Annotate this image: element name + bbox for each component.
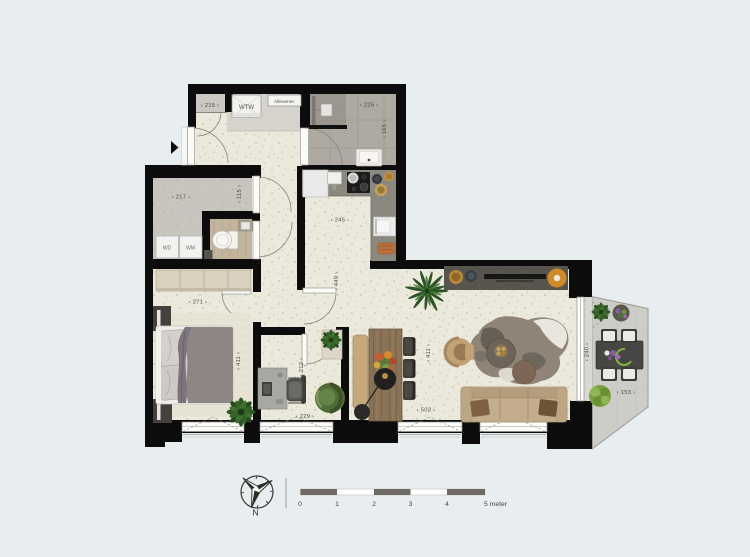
svg-text:WD: WD: [163, 246, 172, 252]
svg-text:‹ 217 ›: ‹ 217 ›: [172, 195, 190, 201]
svg-text:‹ 240 ›: ‹ 240 ›: [585, 343, 591, 361]
svg-text:‹ 411 ›: ‹ 411 ›: [426, 344, 432, 362]
svg-text:‹ 153 ›: ‹ 153 ›: [617, 390, 635, 396]
svg-text:4: 4: [445, 501, 449, 508]
svg-text:‹ 411 ›: ‹ 411 ›: [236, 352, 242, 370]
svg-text:N: N: [253, 508, 259, 518]
svg-text:WM: WM: [186, 246, 195, 252]
svg-text:‹ 502 ›: ‹ 502 ›: [417, 408, 435, 414]
svg-text:2: 2: [372, 501, 376, 508]
svg-text:‹ 245 ›: ‹ 245 ›: [331, 218, 349, 224]
svg-text:5 meter: 5 meter: [484, 501, 508, 508]
svg-text:‹ 215 ›: ‹ 215 ›: [201, 103, 219, 109]
svg-text:‹ 449 ›: ‹ 449 ›: [334, 272, 340, 290]
svg-text:‹ 271 ›: ‹ 271 ›: [189, 300, 207, 306]
svg-text:‹ 165 ›: ‹ 165 ›: [382, 120, 388, 138]
svg-text:3: 3: [409, 501, 413, 508]
svg-text:‹ 225 ›: ‹ 225 ›: [360, 103, 378, 109]
svg-text:‹ 212 ›: ‹ 212 ›: [299, 358, 305, 376]
svg-text:0: 0: [298, 501, 302, 508]
svg-text:‹ 229 ›: ‹ 229 ›: [296, 414, 314, 420]
svg-text:WTW: WTW: [239, 105, 254, 111]
svg-text:Aflevener.: Aflevener.: [274, 99, 295, 105]
svg-text:1: 1: [335, 501, 339, 508]
svg-text:‹ 115 ›: ‹ 115 ›: [237, 185, 243, 203]
